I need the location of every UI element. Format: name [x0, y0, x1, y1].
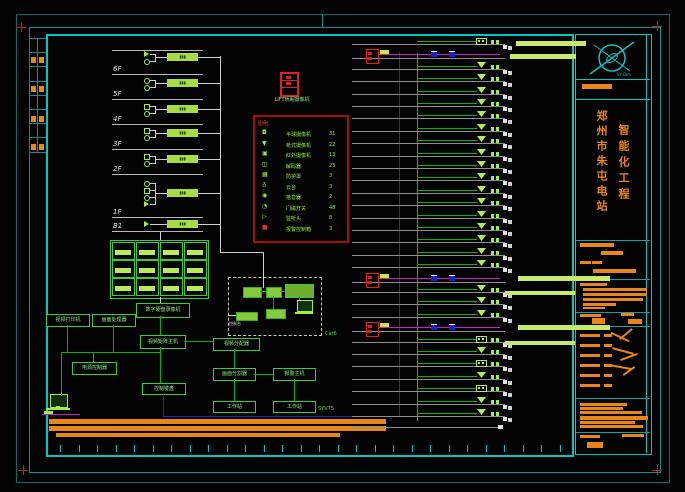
trunk-node-icon [449, 51, 455, 57]
legend-qty: 23 [329, 163, 335, 169]
title-text-bar [592, 318, 605, 324]
roof-line [112, 50, 203, 51]
camera-branch-line [417, 264, 477, 265]
strip-mark-icon [31, 86, 36, 92]
camera-tag-white [508, 71, 512, 75]
scale-tick [338, 445, 339, 452]
strip-mark-icon [31, 116, 36, 122]
camera-tag-green [491, 40, 494, 44]
row-floor-line [352, 218, 505, 219]
camera-tag-green [491, 412, 494, 416]
scale-tick [208, 445, 209, 452]
camera-tag-white [508, 145, 512, 149]
camera-tag-white [508, 232, 512, 236]
floor-label: 6F [113, 65, 121, 73]
camera-branch-line [417, 66, 477, 67]
camera-tag-white [503, 132, 507, 136]
legend-name: 红外摄像机 [286, 152, 311, 159]
title-text-bar [582, 84, 612, 89]
legend-name: 报警控制箱 [286, 226, 311, 233]
title-text-bar [580, 416, 648, 420]
green-connector [254, 374, 273, 375]
device-dot-icon [144, 181, 150, 187]
row-floor-line [352, 404, 505, 405]
camera-tag-green [496, 251, 499, 255]
camera-branch-line [417, 401, 477, 402]
decoder-dot [478, 387, 480, 389]
operator-pc-base [46, 408, 70, 410]
legend-title: 图例: [258, 120, 270, 127]
monitor-wall-cell [112, 278, 135, 296]
keyboard-label: 控制键盘 [154, 387, 174, 392]
camera-branch-line [417, 91, 477, 92]
camera-tag-green [491, 375, 494, 379]
title-text-bar [604, 334, 612, 337]
legend-name: 解码器 [286, 163, 301, 170]
row-floor-line [352, 81, 505, 82]
floor-label: 2F [113, 165, 121, 173]
camera-tag-white [508, 195, 512, 199]
camera-tag-white [508, 381, 512, 385]
green-connector [280, 291, 285, 292]
row-floor-line [352, 168, 505, 169]
camera-tag-green [491, 139, 494, 143]
scale-tick [79, 445, 80, 452]
camera-tag-green [496, 40, 499, 44]
scale-tick [412, 445, 413, 452]
device-dot-icon [144, 59, 150, 65]
row-floor-line [352, 230, 505, 231]
title-text-bar [580, 334, 600, 337]
camera-tag-white [503, 144, 507, 148]
title-text-bar [604, 344, 612, 347]
camera-tag-white [503, 181, 507, 185]
camera-tag-green [491, 90, 494, 94]
title-text-bar [580, 354, 600, 357]
trunk-node-icon [449, 275, 455, 281]
legend-name: 枪式摄像机 [286, 142, 311, 149]
registration-cross [23, 465, 24, 475]
camera-tag-green [496, 102, 499, 106]
legend-qty: 3 [329, 173, 332, 179]
console-unit-b [266, 287, 282, 298]
scale-tick [504, 445, 505, 452]
scale-tick [60, 445, 61, 452]
keyboard-blue-drop [163, 393, 164, 416]
green-connector [184, 341, 213, 342]
camera-tag-green [496, 77, 499, 81]
monitor-wall-cell [136, 278, 159, 296]
camera-tag-white [503, 95, 507, 99]
camera-tag-white [503, 405, 507, 409]
green-connector [273, 296, 274, 309]
title-text-bar [628, 319, 642, 324]
scale-tick [375, 445, 376, 452]
bottom-orange-bar-2 [49, 426, 386, 431]
camera-tag-white [508, 368, 512, 372]
legend-symbol-icon: ◉ [262, 193, 267, 199]
power-label: 电源控制器 [82, 366, 107, 371]
title-text-bar [583, 298, 643, 301]
camera-branch-line [417, 78, 477, 79]
legend-qty: 8 [329, 215, 332, 221]
camera-tag-white [508, 257, 512, 261]
lift-trunk-inner [368, 325, 372, 328]
camera-branch-line [417, 289, 477, 290]
legend-qty: 22 [329, 142, 335, 148]
device-dot-icon [144, 135, 150, 141]
cat6-cable-label: Cat6 [325, 331, 337, 337]
monitor-screen-bar [163, 268, 179, 273]
legend-qty: 2 [329, 194, 332, 200]
decoder-dot [482, 362, 484, 364]
camera-tag-green [491, 338, 494, 342]
lift-trunk-inner [368, 281, 372, 284]
camera-tag-green [491, 313, 494, 317]
camera-branch-line [417, 128, 477, 129]
camera-tag-green [496, 263, 499, 267]
scale-tick [449, 445, 450, 452]
green-connector [234, 349, 235, 368]
camera-tag-green [491, 65, 494, 69]
matrix-box: 视频矩阵主机 [140, 335, 186, 349]
monitor-screen-bar [163, 250, 179, 255]
device-dot-icon [144, 111, 150, 117]
device-wire [155, 57, 167, 58]
floor-line [112, 174, 203, 175]
device-wire [198, 83, 220, 84]
title-text-bar [580, 314, 601, 317]
scale-tick [245, 445, 246, 452]
decoder-dot [482, 40, 484, 42]
collector-line [220, 252, 264, 253]
scale-tick [430, 445, 431, 452]
camera-tag-white [508, 406, 512, 410]
scale-tick [523, 445, 524, 452]
decoder-dot [478, 362, 480, 364]
monitor-screen-bar [163, 286, 179, 291]
row-floor-line [352, 267, 505, 268]
green-connector [160, 316, 161, 335]
logo-cell-divider1 [576, 79, 650, 80]
console-label: 控制台 [229, 321, 241, 327]
device-wire [198, 133, 220, 134]
collector-line [263, 252, 264, 278]
device-wire [155, 80, 156, 88]
trunk-node-icon [431, 275, 437, 281]
camera-tag-green [491, 214, 494, 218]
floor-line [112, 99, 203, 100]
green-connector [299, 296, 300, 300]
camera-tag-green [491, 102, 494, 106]
title-text-bar [604, 374, 612, 377]
title-text-bar [580, 243, 614, 247]
monitor-screen-bar [115, 286, 131, 291]
camera-tag-green [496, 400, 499, 404]
camera-tag-white [503, 231, 507, 235]
camera-tag-white [508, 83, 512, 87]
green-connector [67, 325, 68, 352]
camera-tag-green [491, 114, 494, 118]
alarm-label: 报警主机 [284, 372, 304, 377]
camera-tag-green [496, 189, 499, 193]
row-floor-line [352, 354, 505, 355]
camera-tag-green [491, 263, 494, 267]
camera-branch-line [417, 140, 477, 141]
floor-device-box: ▮▮▮ [167, 220, 198, 228]
lift-trunk-inner [368, 276, 372, 279]
device-wire [155, 224, 167, 225]
workstation2-label: 工作站 [287, 405, 302, 410]
title-text-bar [580, 283, 607, 286]
trunk-node-icon [431, 324, 437, 330]
camera-tag-green [491, 127, 494, 131]
floor-line [112, 74, 203, 75]
camera-tag-green [491, 152, 494, 156]
camera-branch-line [417, 339, 477, 340]
row-floor-line [352, 317, 505, 318]
camera-tag-green [496, 350, 499, 354]
scale-tick [560, 445, 561, 452]
splitter-label: 视频分配器 [224, 342, 249, 347]
device-tri-icon [144, 51, 149, 57]
legend-name: 半球摄像机 [286, 131, 311, 138]
camera-branch-line [417, 227, 477, 228]
device-dot-icon [144, 78, 150, 84]
decoder-dot [478, 40, 480, 42]
camera-tag-green [491, 226, 494, 230]
monitor-screen-bar [139, 268, 155, 273]
console-pc-base [295, 312, 313, 314]
camera-branch-line [417, 103, 477, 104]
camera-tag-white [503, 219, 507, 223]
collector-line [160, 297, 161, 303]
green-connector [113, 325, 114, 352]
green-connector [93, 352, 94, 362]
floor-label: B1 [113, 222, 122, 230]
device-sq-icon [144, 104, 150, 110]
title-text-bar [583, 303, 616, 306]
title-divider [576, 240, 650, 241]
camera-tag-white [508, 108, 512, 112]
scale-tick [134, 445, 135, 452]
green-connector [234, 379, 235, 401]
scale-tick [171, 445, 172, 452]
camera-tag-green [496, 288, 499, 292]
scale-tick [356, 445, 357, 452]
matrix-label: 视频矩阵主机 [148, 340, 178, 345]
trunk-node-icon [449, 324, 455, 330]
monitor-screen-bar [187, 250, 203, 255]
trunk-node-icon [431, 51, 437, 57]
title-text-bar [593, 269, 636, 273]
row-floor-line [352, 94, 505, 95]
dvr-box: 数字硬盘录像机 [136, 303, 190, 318]
logo-cell-divider2 [576, 99, 650, 100]
legend-qty: 31 [329, 131, 335, 137]
scale-tick [301, 445, 302, 452]
camera-branch-line [417, 301, 477, 302]
equipment-bar [505, 341, 575, 345]
green-connector [61, 352, 161, 353]
legend-symbol-icon: ♁ [262, 183, 266, 189]
camera-tag-green [496, 114, 499, 118]
device-wire [198, 159, 220, 160]
camera-branch-line [417, 177, 477, 178]
row-floor-line [352, 69, 505, 70]
camera-tag-green [491, 387, 494, 391]
camera-tag-white [508, 319, 512, 323]
lift-trunk-inner [368, 57, 372, 60]
device-wire [155, 133, 167, 134]
camera-tag-white [503, 45, 507, 49]
title-text-bar [580, 407, 623, 410]
row-floor-line [352, 156, 505, 157]
console-unit-d [266, 309, 286, 319]
keyboard-box: 控制键盘 [142, 383, 186, 395]
strip-mark-icon [39, 116, 44, 122]
camera-tag-white [503, 119, 507, 123]
strip-mark-icon [39, 57, 44, 63]
camera-branch-line [417, 351, 477, 352]
dvr-label: 数字硬盘录像机 [145, 308, 180, 313]
monitor-screen-bar [139, 250, 155, 255]
trunk-video-line [379, 54, 500, 55]
monitor-wall-cell [184, 242, 207, 260]
equipment-bar [510, 54, 576, 59]
camera-tag-green [496, 362, 499, 366]
camera-branch-line [417, 115, 477, 116]
equipment-bar [518, 276, 610, 281]
top-center-tick [322, 14, 323, 27]
console-pc-icon [297, 300, 313, 312]
title-text-bar [583, 307, 605, 309]
row-floor-line [352, 416, 505, 417]
workstation2-box: 工作站 [273, 401, 316, 413]
legend-symbol-icon: ◫ [262, 162, 268, 168]
title-text-bar [580, 384, 600, 387]
monitor-wall-cell [184, 278, 207, 296]
elevator-label: LIFT轿厢摄像机 [268, 96, 316, 103]
device-wire [155, 83, 167, 84]
legend-qty: 3 [329, 184, 332, 190]
device-wire [198, 224, 220, 225]
title-text-bar [580, 344, 600, 347]
camera-branch-line [417, 413, 477, 414]
camera-tag-green [496, 387, 499, 391]
scale-tick [319, 445, 320, 452]
scale-tick [264, 445, 265, 452]
camera-branch-line [417, 376, 477, 377]
device-sq-icon [144, 128, 150, 134]
decoder-dot [482, 387, 484, 389]
decoder-dot [478, 338, 480, 340]
camera-tag-white [503, 256, 507, 260]
legend-symbol-icon: ▣ [262, 151, 268, 157]
camera-tag-green [491, 300, 494, 304]
camera-tag-white [508, 220, 512, 224]
camera-tag-white [503, 169, 507, 173]
camera-tag-green [491, 176, 494, 180]
title-text-bar [580, 261, 591, 264]
title-text-bar [580, 411, 642, 414]
floor-line [112, 217, 203, 218]
device-sq-icon [144, 154, 150, 160]
camera-branch-line [417, 314, 477, 315]
legend-symbol-icon: ▷ [262, 214, 267, 220]
title-text-bar [601, 251, 623, 255]
lift-trunk-inner [368, 330, 372, 333]
strip-mark-icon [39, 144, 44, 150]
floor-device-box: ▮▮▮ [167, 53, 198, 61]
camera-tag-white [508, 418, 512, 422]
workstation1-label: 工作站 [227, 405, 242, 410]
scale-tick [116, 445, 117, 452]
device-wire [155, 106, 156, 114]
camera-tag-green [496, 238, 499, 242]
camera-branch-line [417, 202, 477, 203]
camera-tag-white [503, 194, 507, 198]
camera-tag-white [503, 318, 507, 322]
device-wire [155, 130, 156, 138]
scale-tick [97, 445, 98, 452]
camera-tag-green [491, 238, 494, 242]
device-tri-icon [144, 201, 149, 207]
floor-label: 4F [113, 115, 121, 123]
monitor-wall-cell [112, 242, 135, 260]
floor-label: 1F [113, 208, 121, 216]
camera-tag-white [503, 355, 507, 359]
cad-canvas: LIFT轿厢摄像机 图例: ◘半球摄像机31▼枪式摄像机22▣红外摄像机13◫解… [0, 0, 685, 492]
camera-branch-line [417, 252, 477, 253]
equipment-bar [518, 325, 610, 330]
coax-cable-label: SYV75 [318, 406, 334, 412]
scale-tick [486, 445, 487, 452]
camera-tag-green [496, 412, 499, 416]
monitor-screen-bar [187, 286, 203, 291]
camera-tag-white [508, 393, 512, 397]
monitor-wall-cell [160, 260, 183, 278]
device-dot-icon [144, 85, 150, 91]
title-text-bar [622, 434, 644, 437]
camera-tag-white [508, 269, 512, 273]
decoder-dot [482, 338, 484, 340]
device-wire [155, 54, 156, 62]
floor-device-box: ▮▮▮ [167, 189, 198, 197]
camera-branch-line [417, 41, 477, 42]
green-connector [160, 347, 161, 383]
floor-line [112, 149, 203, 150]
registration-cross [21, 22, 22, 32]
title-text-bar [580, 435, 600, 438]
camera-tag-green [496, 127, 499, 131]
camera-tag-white [503, 367, 507, 371]
camera-branch-line [417, 153, 477, 154]
row-floor-line [352, 118, 505, 119]
camera-tag-green [491, 77, 494, 81]
legend-name: 防护罩 [286, 173, 301, 180]
row-floor-line [352, 427, 498, 428]
camera-tag-white [508, 133, 512, 137]
legend-name: 监听头 [286, 215, 301, 222]
operator-pc-mat [42, 414, 80, 415]
camera-tag-white [508, 158, 512, 162]
processor-box: 画面处理器 [92, 314, 136, 327]
camera-tag-white [503, 157, 507, 161]
camera-tag-white [508, 46, 512, 50]
scale-tick [282, 445, 283, 452]
row-floor-line [352, 242, 505, 243]
